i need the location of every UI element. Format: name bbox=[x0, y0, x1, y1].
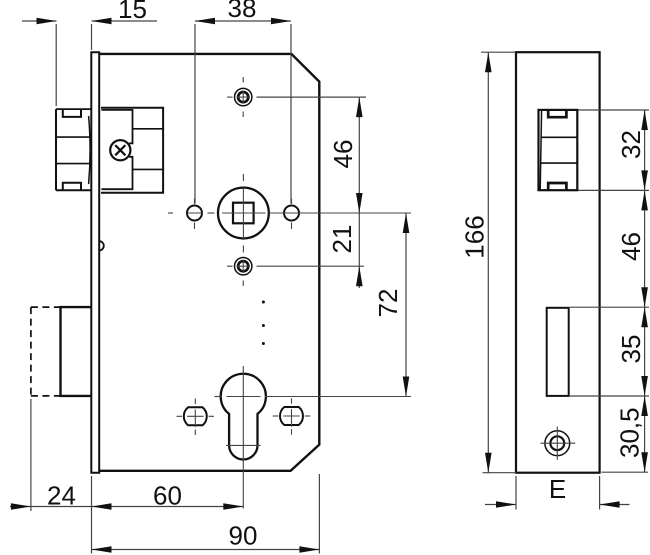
svg-text:72: 72 bbox=[373, 289, 403, 318]
svg-text:166: 166 bbox=[460, 215, 490, 258]
svg-text:38: 38 bbox=[228, 0, 257, 23]
svg-text:E: E bbox=[549, 474, 566, 504]
svg-text:24: 24 bbox=[47, 481, 76, 511]
svg-text:32: 32 bbox=[616, 130, 646, 159]
svg-text:30,5: 30,5 bbox=[615, 407, 645, 458]
svg-text:35: 35 bbox=[616, 335, 646, 364]
svg-text:21: 21 bbox=[327, 225, 357, 254]
svg-text:46: 46 bbox=[328, 140, 358, 169]
svg-text:90: 90 bbox=[229, 521, 258, 551]
svg-text:46: 46 bbox=[616, 232, 646, 261]
svg-text:60: 60 bbox=[153, 481, 182, 511]
svg-text:15: 15 bbox=[118, 0, 147, 24]
